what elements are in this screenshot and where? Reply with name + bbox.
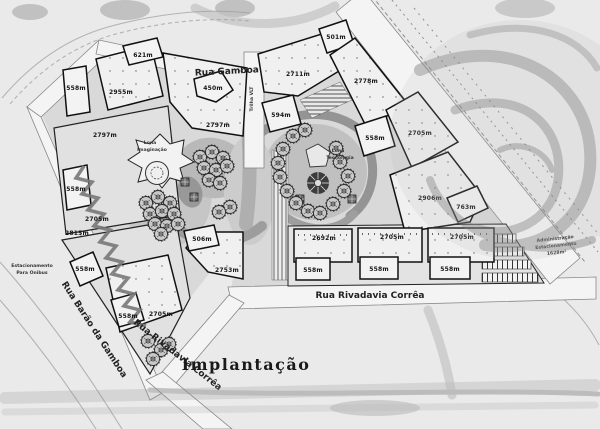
page-title: Implantação — [182, 355, 311, 374]
area-label: 558m — [118, 313, 138, 320]
area-label: 594m — [271, 112, 291, 119]
area-label: 2797m — [206, 122, 230, 129]
area-label: 2705m — [149, 311, 173, 318]
site-plan-svg: 621m 2955m 558m 450m 2797m 2797m 594m 27… — [0, 0, 600, 429]
area-label: 558m — [66, 85, 86, 92]
area-label: 2797m — [93, 132, 117, 139]
parking-row-4 — [482, 273, 538, 282]
lona-east-label-line2: Tecnologia — [326, 155, 353, 161]
planter-icon — [181, 178, 189, 186]
area-label: 558m — [303, 267, 323, 274]
area-label: 558m — [365, 135, 385, 142]
planter-icon — [348, 195, 356, 203]
area-label: 621m — [133, 52, 153, 59]
area-label: 450m — [203, 85, 223, 92]
area-label: 2705m — [85, 216, 109, 223]
bus-parking-label-line1: Estacionamento — [11, 263, 53, 269]
area-label: 501m — [326, 34, 346, 41]
street-label-trilha-vlt: Trilha VLT — [249, 86, 255, 112]
lona-west-label-line2: Imaginação — [137, 147, 167, 153]
area-label: 2778m — [354, 78, 378, 85]
street-label-rivadavia: Rua Rivadavia Corrêa — [315, 290, 424, 301]
bus-parking-label-line2: Para Onibus — [16, 270, 48, 276]
amphitheater-fan — [307, 172, 329, 194]
area-label: 2705m — [380, 234, 404, 241]
area-label: 2955m — [109, 89, 133, 96]
building-2692 — [294, 229, 352, 262]
area-label: 558m — [66, 186, 86, 193]
lona-west-label-line1: Lona — [144, 140, 156, 146]
area-label: 558m — [369, 266, 389, 273]
area-label: 2815m — [65, 230, 89, 237]
area-label: 2692m — [312, 235, 336, 242]
sketch-blob-2 — [100, 0, 150, 20]
sketch-blob-1 — [12, 4, 48, 20]
plaza-circle-west — [146, 162, 169, 185]
lona-east-label-line1: Lona — [332, 148, 344, 154]
site-plan-page: 621m 2955m 558m 450m 2797m 2797m 594m 27… — [0, 0, 600, 429]
sketch-smudge-bottom — [330, 400, 420, 416]
sketch-streak-3 — [150, 390, 598, 394]
area-label: 506m — [192, 236, 212, 243]
planter-icon — [190, 193, 198, 201]
area-label: 558m — [440, 266, 460, 273]
area-label: 2711m — [286, 71, 310, 78]
amphitheater-stage — [315, 180, 322, 187]
area-label: 558m — [75, 266, 95, 273]
area-label: 2753m — [215, 267, 239, 274]
